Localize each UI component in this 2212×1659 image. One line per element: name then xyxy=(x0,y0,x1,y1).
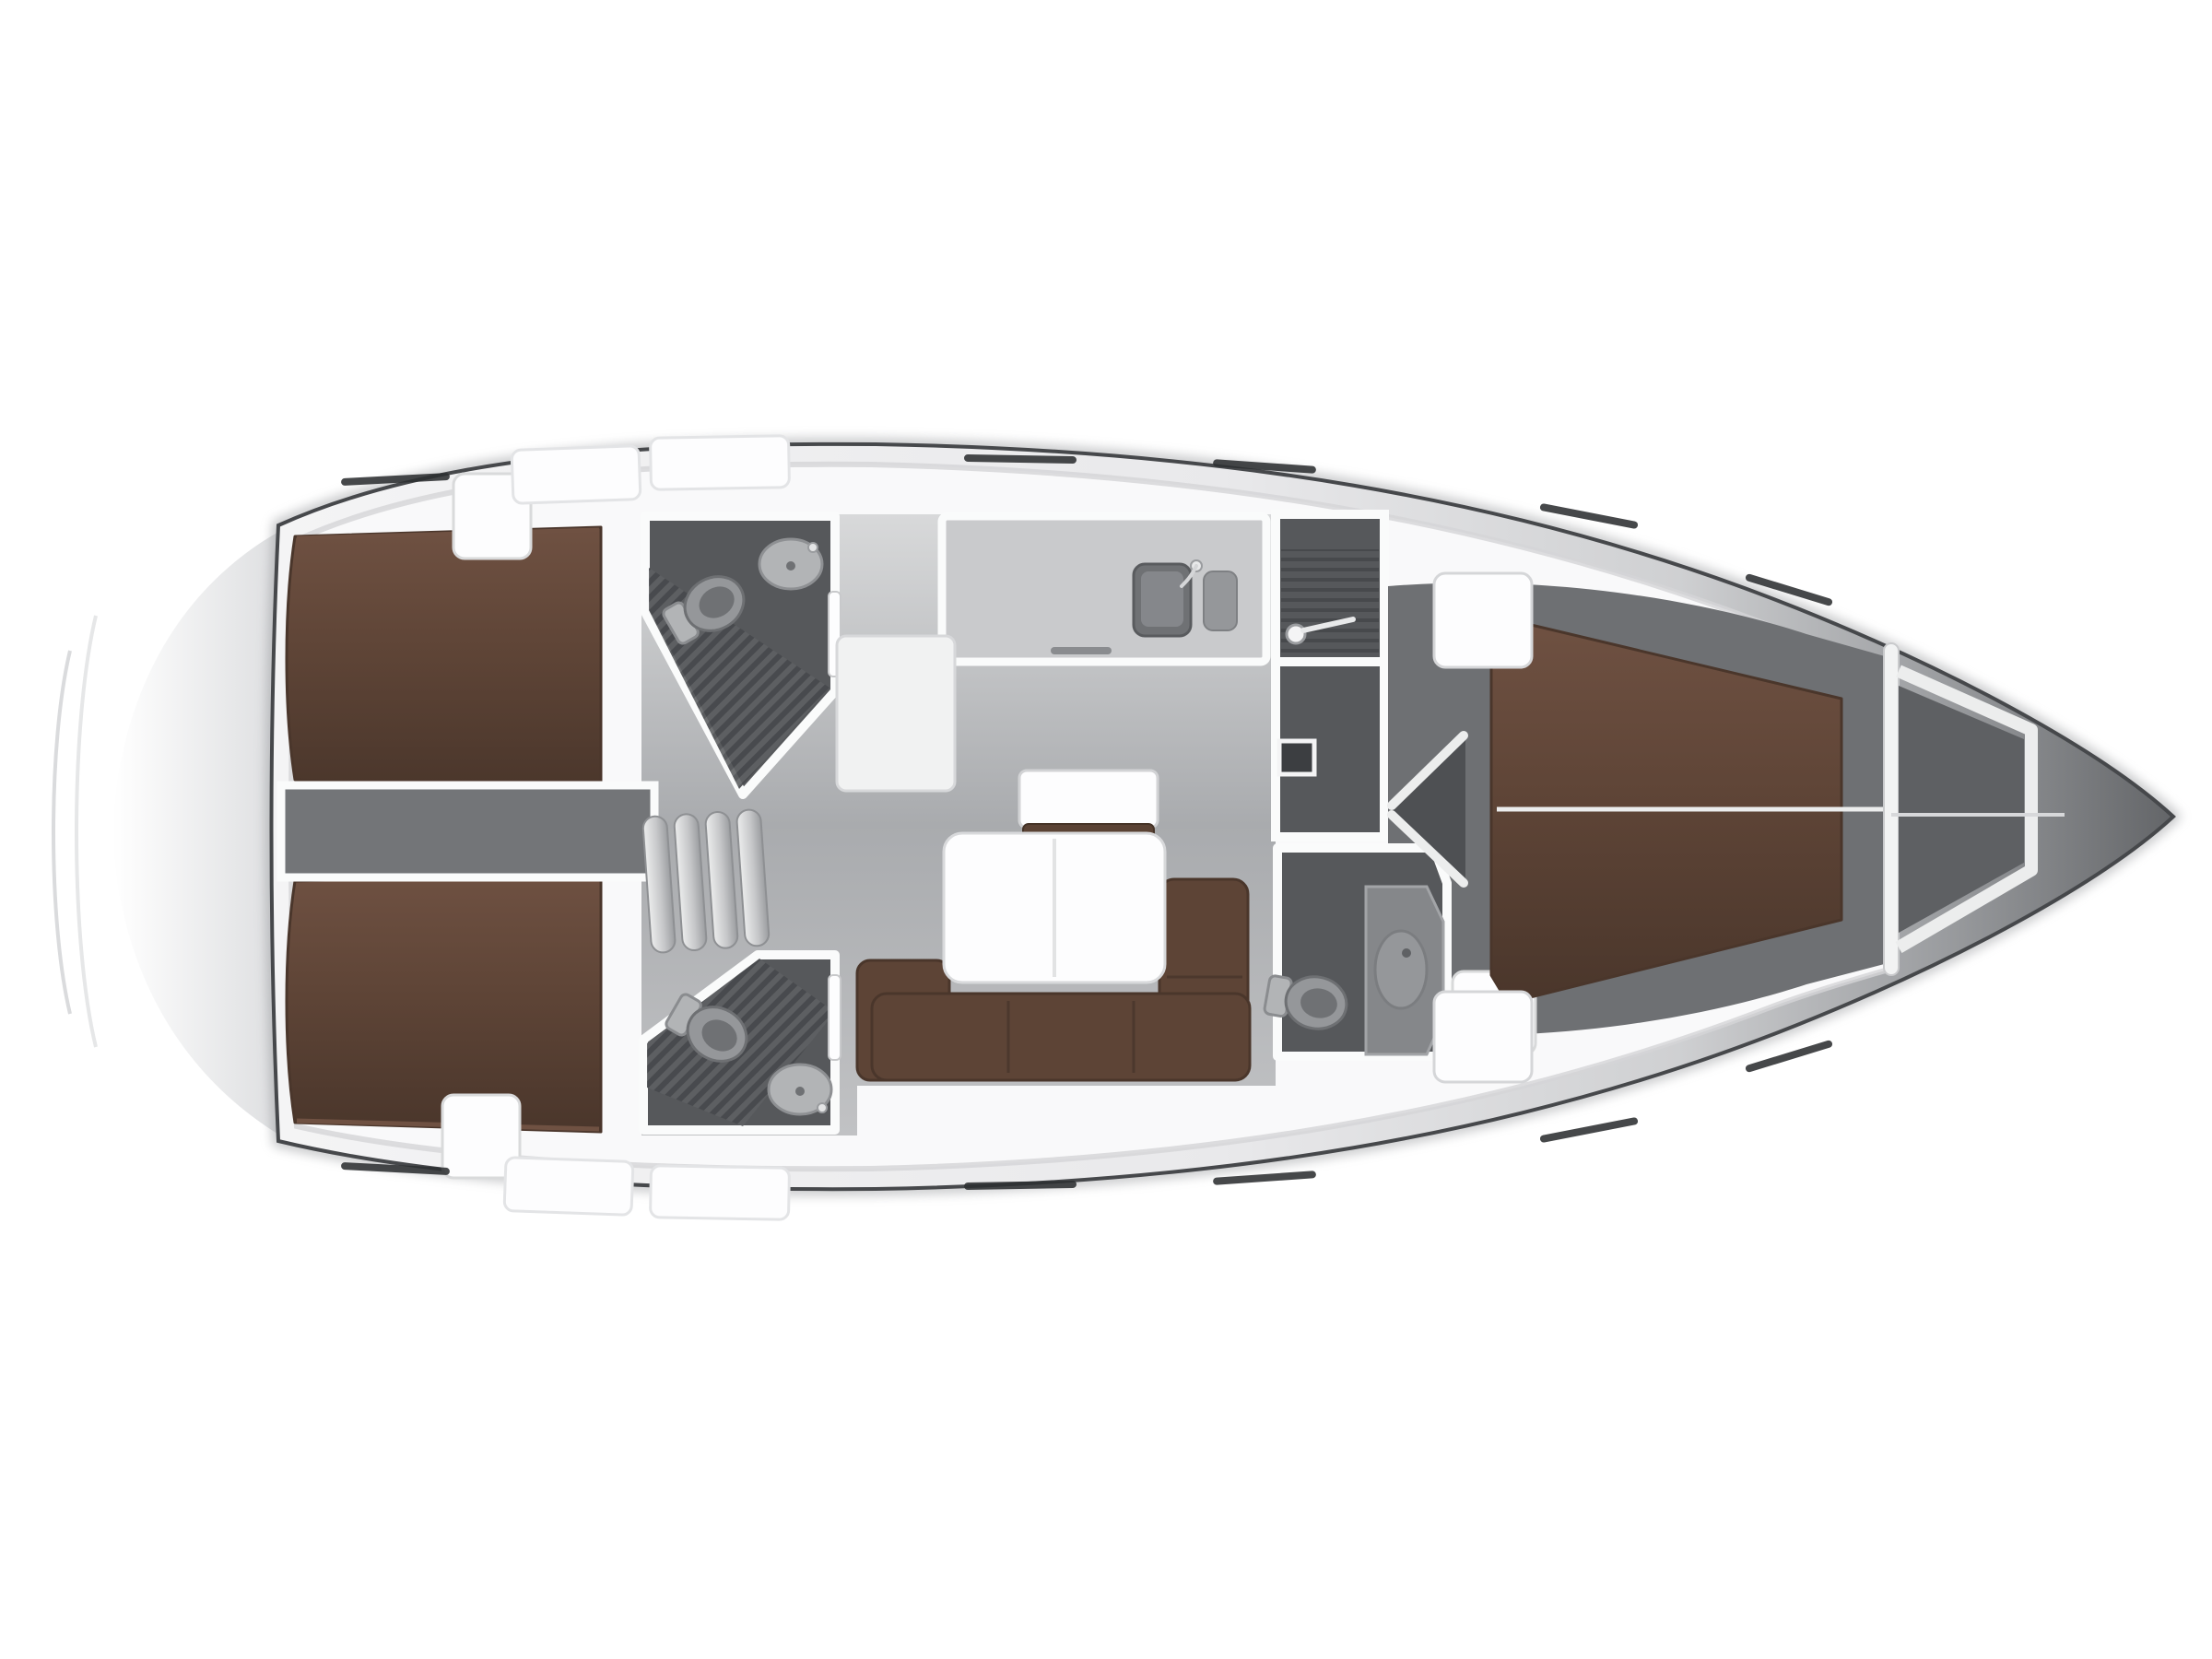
yacht-floorplan-canvas xyxy=(0,0,2212,1659)
washbasin-drain xyxy=(795,1087,805,1096)
pillow-shelf-bottom xyxy=(1434,992,1532,1082)
vanity-basin-icon xyxy=(1375,931,1427,1008)
pillow-shelf-top xyxy=(1434,573,1532,667)
window-dash xyxy=(1539,1117,1639,1143)
washbasin-faucet-icon xyxy=(808,543,818,552)
deck-hatch xyxy=(504,1158,633,1216)
window-dash xyxy=(1213,1171,1316,1185)
aft-port-berth xyxy=(287,527,601,793)
deck-hatch xyxy=(651,1166,790,1220)
galley-aft-unit xyxy=(837,636,955,791)
salon-table xyxy=(944,833,1165,982)
galley-handle xyxy=(1051,647,1112,654)
stern-platform xyxy=(53,531,280,1135)
washbasin-faucet-icon xyxy=(818,1103,827,1112)
sofa-bottom-bench xyxy=(872,994,1250,1080)
stern-trim-line-outer xyxy=(53,651,70,1014)
yacht-floorplan-page xyxy=(0,0,2212,1659)
head-door xyxy=(829,975,841,1060)
washbasin-drain xyxy=(786,561,795,571)
deck-hatch xyxy=(651,436,790,490)
galley-sink-basin xyxy=(1141,571,1183,627)
deck-hatch xyxy=(512,446,641,504)
stern-platform-shade xyxy=(112,531,280,1135)
sideboard-top xyxy=(1019,771,1158,828)
shower-head-icon xyxy=(1287,625,1305,643)
engine-corridor xyxy=(281,785,654,877)
galley-board xyxy=(1204,571,1237,630)
aft-stbd-berth xyxy=(287,872,601,1132)
fold-seat xyxy=(1279,741,1314,774)
stern-trim-line-inner xyxy=(76,616,96,1047)
vanity-drain xyxy=(1402,948,1411,958)
bow-bulkhead xyxy=(1884,643,1899,975)
